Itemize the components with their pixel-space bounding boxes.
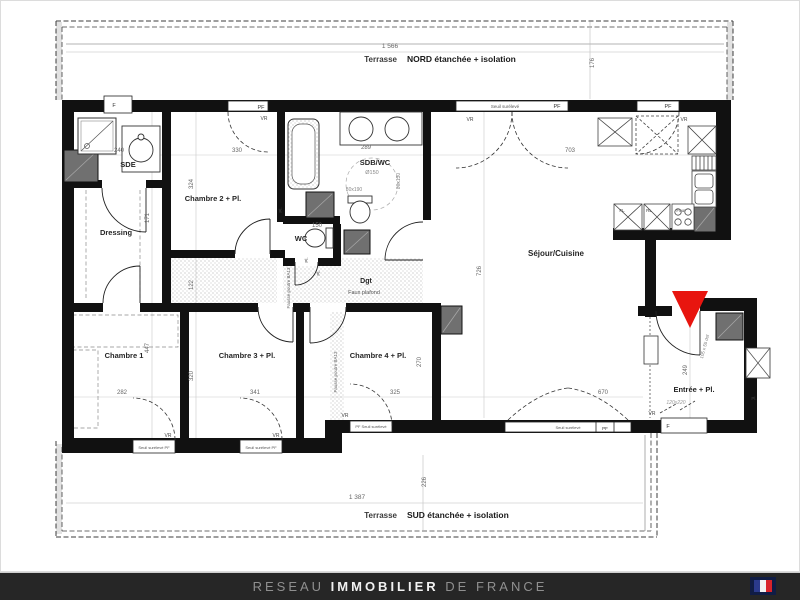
terrasse-sud-dim-depth: 226 — [422, 476, 428, 487]
dim: 703 — [565, 148, 576, 154]
closet-label: Pl. — [316, 270, 321, 275]
terrasse-nord-dim-width: 1 566 — [382, 43, 399, 50]
kitchen-label: Four — [676, 208, 686, 213]
room-chambre-2: Chambre 2 + Pl. — [185, 194, 241, 203]
room-dressing: Dressing — [100, 228, 133, 237]
dim: 341 — [250, 390, 261, 396]
dim: 282 — [117, 390, 128, 396]
floorplan-page: 1 566TerrasseNORD étanchée + isolation17… — [0, 0, 800, 600]
room-chambre-3: Chambre 3 + Pl. — [219, 351, 275, 360]
vent-label: VR — [649, 411, 656, 417]
brand-text: RESEAU IMMOBILIER DE FRANCE — [253, 579, 548, 594]
terrasse-nord-dim-depth: 176 — [590, 57, 596, 68]
brand-prefix: RESEAU — [253, 579, 331, 594]
room-sde: SDE — [120, 160, 135, 169]
room-wc: WC — [295, 234, 308, 243]
room-dgt: Dgt — [360, 278, 372, 285]
vent-label: VR — [261, 116, 268, 122]
dim: 670 — [598, 390, 609, 396]
toilet-wc — [305, 228, 333, 248]
bathtub — [288, 119, 319, 189]
beam-note: Fausse poutre BA13 — [333, 351, 338, 393]
window-label: PF Seuil surélevé — [355, 424, 387, 429]
shower — [78, 118, 116, 154]
france-flag-icon — [750, 577, 776, 595]
window-label: PF — [602, 426, 608, 431]
footer-bar: RESEAU IMMOBILIER DE FRANCE — [0, 572, 800, 600]
brand-suffix: DE FRANCE — [439, 579, 548, 594]
vent-label: VR — [273, 433, 280, 439]
room-chambre-4: Chambre 4 + Pl. — [350, 351, 406, 360]
room-sdb-wc: SDB/WC — [360, 158, 391, 167]
room-dgt-note: Faux plafond — [348, 290, 380, 296]
terrasse-nord-title: NORD étanchée + isolation — [407, 54, 516, 64]
dim: 249 — [683, 364, 689, 375]
terrasse-sud-prefix: Terrasse — [364, 511, 397, 520]
floorplan-drawing: 1 566TerrasseNORD étanchée + isolation17… — [0, 0, 800, 572]
window-label: Seuil surélevé — [555, 425, 581, 430]
window-label: Seuil surélevé — [491, 104, 520, 109]
room-sejour-cuisine: Séjour/Cuisine — [528, 249, 585, 258]
terrasse-nord-prefix: Terrasse — [364, 55, 397, 64]
window-label: Seuil surélevé PF — [138, 445, 170, 450]
closet-label: Pl. — [304, 257, 309, 262]
dim: 150 — [312, 223, 323, 229]
beam-note: Fausse poutre BA13 — [286, 267, 291, 309]
terrasse-sud-dim-width: 1 387 — [349, 494, 366, 501]
kitchen-label: RL — [646, 208, 652, 213]
dim: 270 — [417, 356, 423, 367]
double-washbasin — [340, 112, 422, 145]
closet-label: Pl. — [278, 207, 283, 212]
dim: 325 — [390, 390, 401, 396]
room-chambre-1: Chambre 1 — [105, 351, 144, 360]
dim: 120x220 — [666, 400, 685, 406]
dim: Ø150 — [365, 170, 378, 176]
window-label: PF — [553, 104, 561, 110]
dim: 324 — [189, 178, 195, 189]
vent-label: VR — [165, 433, 172, 439]
dim: 80x130 — [396, 173, 402, 190]
closet-label: Pl. — [751, 396, 756, 401]
dim: 240 — [114, 148, 125, 154]
dim: 122 — [189, 279, 195, 290]
dim: 289 — [361, 145, 372, 151]
window-label: PF — [664, 104, 672, 110]
dim: 447 — [145, 342, 151, 353]
window-label: PF — [257, 105, 265, 111]
kitchen-label: FL — [619, 208, 625, 213]
vent-label: VR — [342, 413, 349, 419]
terrasse-sud-title: SUD étanchée + isolation — [407, 510, 509, 520]
dim: 726 — [477, 265, 483, 276]
vent-label: VR — [467, 117, 474, 123]
dim: 171 — [145, 212, 151, 223]
window-label: Seuil surélevé PF — [245, 445, 277, 450]
dim: 80x190 — [346, 187, 363, 193]
room-entree: Entrée + Pl. — [673, 385, 714, 394]
brand-emphasis: IMMOBILIER — [331, 579, 439, 594]
dim: 330 — [232, 148, 243, 154]
dim: 320 — [189, 370, 195, 381]
vent-label: VR — [681, 117, 688, 123]
